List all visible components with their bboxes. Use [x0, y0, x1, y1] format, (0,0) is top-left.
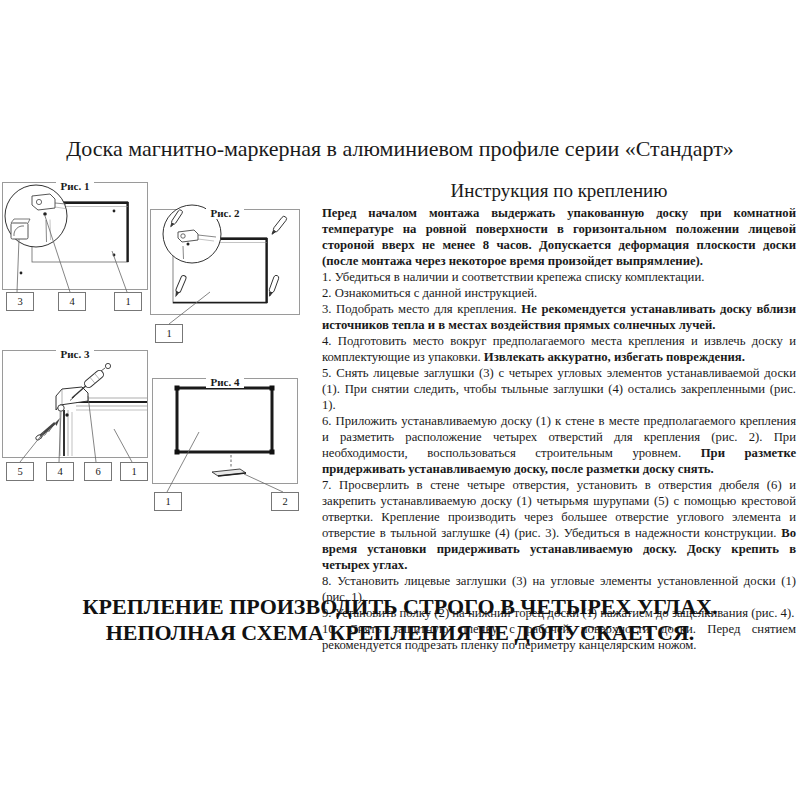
- instruction-sheet: { "page": { "title": "Доска магнитно-мар…: [0, 0, 800, 800]
- instructions-column: Инструкция по креплению Перед началом мо…: [322, 180, 796, 653]
- item-text-bold: Извлекать аккуратно, избегать повреждени…: [484, 350, 745, 364]
- instruction-item-3: 3. Подобрать место для крепления. Не рек…: [322, 301, 796, 333]
- screwdriver-icon: [70, 363, 111, 400]
- screw-hole-dot: [20, 272, 23, 275]
- corner-element: [32, 194, 55, 210]
- figure-2-drawing: [150, 202, 300, 344]
- screw-icon: [35, 418, 60, 441]
- instruction-item-5: 5. Снять лицевые заглушки (3) с четырех …: [322, 365, 796, 413]
- page-title: Доска магнитно-маркерная в алюминиевом п…: [0, 136, 800, 162]
- item-text: 3. Подобрать место для крепления.: [322, 302, 521, 316]
- instruction-item-1: 1. Убедиться в наличии и соответствии кр…: [322, 269, 796, 285]
- front-cap: [11, 223, 28, 239]
- item-text: 7. Просверлить в стене четыре отверстия,…: [322, 478, 796, 540]
- callout-1: 1: [114, 292, 142, 311]
- instruction-item-2: 2. Ознакомиться с данной инструкцией.: [322, 285, 796, 301]
- whiteboard-front-view: [175, 386, 275, 455]
- item-text: 2. Ознакомиться с данной инструкцией.: [322, 286, 537, 300]
- callout-3: 3: [6, 292, 34, 311]
- warning-block: КРЕПЛЕНИЕ ПРОИЗВОДИТЬ СТРОГО В ЧЕТЫРЕХ У…: [0, 594, 800, 646]
- screw-hole-dot: [113, 210, 116, 213]
- figure-frame: [3, 351, 148, 458]
- callout-1: 1: [154, 492, 182, 511]
- item-text: 1. Убедиться в наличии и соответствии кр…: [322, 270, 704, 284]
- instruction-item-4: 4. Подготовить место вокруг предполагаем…: [322, 333, 796, 365]
- rear-cap-hole: [58, 405, 64, 411]
- item-text: 5. Снять лицевые заглушки (3) с четырех …: [322, 366, 796, 412]
- callout-5: 5: [6, 462, 34, 481]
- shelf-drawing: [212, 469, 246, 476]
- profile-edges: [60, 398, 147, 456]
- callout-4: 4: [58, 292, 86, 311]
- figure-1: Рис. 1 3 4 1: [2, 176, 148, 312]
- instructions-intro: Перед началом монтажа выдержать упакован…: [322, 205, 796, 269]
- callout-2: 2: [271, 492, 299, 511]
- detail-circle: [5, 185, 67, 247]
- callout-1: 1: [120, 462, 148, 481]
- figure-4-drawing: [152, 372, 298, 512]
- figure-4: Рис. 4 1 2: [152, 372, 298, 512]
- instruction-item-6: 6. Приложить устанавливаемую доску (1) к…: [322, 413, 796, 477]
- callout-4: 4: [46, 462, 74, 481]
- warning-line-2: НЕПОЛНАЯ СХЕМА КРЕПЛЕНИЯ НЕ ДОПУСКАЕТСЯ.: [0, 620, 800, 646]
- instructions-heading: Инструкция по креплению: [322, 180, 796, 202]
- warning-line-1: КРЕПЛЕНИЕ ПРОИЗВОДИТЬ СТРОГО В ЧЕТЫРЕХ У…: [0, 594, 800, 620]
- instruction-item-7: 7. Просверлить в стене четыре отверстия,…: [322, 477, 796, 573]
- callout-6: 6: [84, 462, 112, 481]
- figure-3: Рис. 3 5 4 6 1: [2, 344, 148, 484]
- detail-circle: [163, 205, 221, 263]
- callout-1: 1: [155, 324, 183, 343]
- figure-2: Рис. 2 1: [150, 202, 300, 344]
